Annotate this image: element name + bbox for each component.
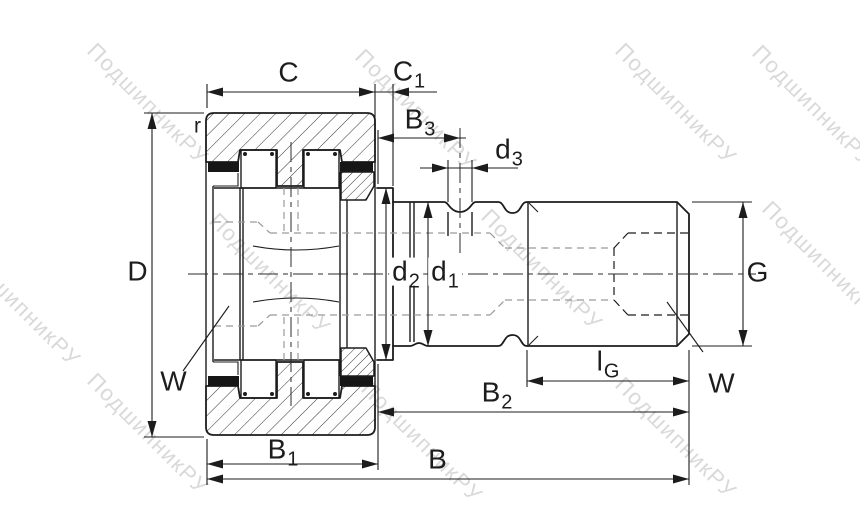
rollers	[241, 150, 339, 398]
drawing-canvas: ПодшипникРУ ПодшипникРУ ПодшипникРУ Подш…	[0, 0, 860, 530]
label-C1: C1	[393, 58, 425, 86]
label-d2: d2	[389, 258, 423, 286]
label-G: G	[747, 259, 770, 287]
label-r: r	[194, 115, 202, 136]
label-D: D	[127, 258, 148, 286]
dimension-B	[207, 475, 689, 484]
label-C: C	[278, 59, 299, 87]
label-B2: B2	[482, 379, 513, 407]
dimension-B3	[378, 130, 466, 184]
label-W-right: W	[708, 370, 735, 398]
label-d1: d1	[428, 258, 462, 286]
label-d3: d3	[495, 136, 523, 164]
label-W-left: W	[160, 368, 187, 396]
label-B3: B3	[405, 106, 436, 134]
label-B1: B1	[268, 436, 299, 464]
stud-collar	[341, 172, 374, 200]
dimension-B2	[378, 350, 689, 485]
w-right-leader	[667, 302, 703, 352]
dimension-d3	[420, 160, 518, 202]
label-lG: lG	[597, 348, 620, 376]
label-B: B	[428, 446, 448, 474]
